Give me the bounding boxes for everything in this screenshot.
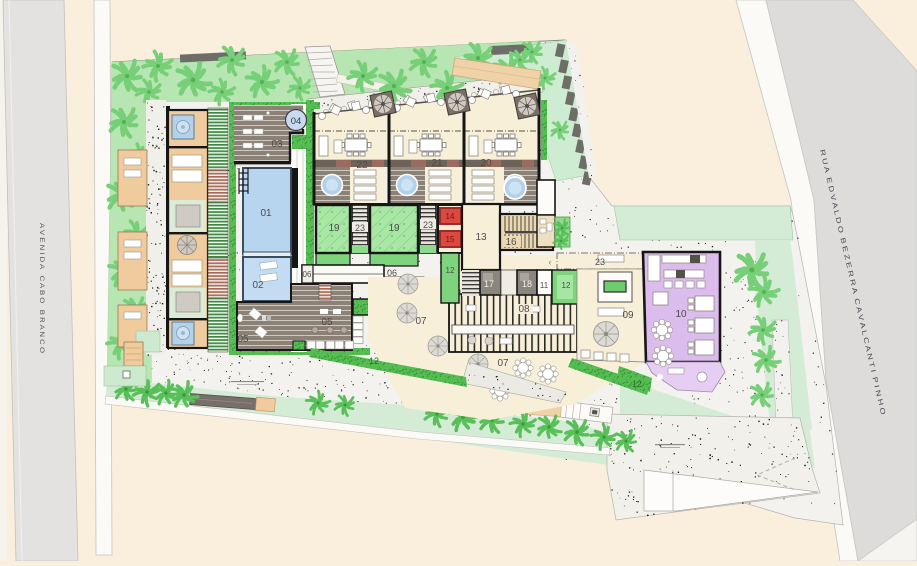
svg-text:23: 23 — [595, 257, 605, 267]
svg-text:16: 16 — [505, 237, 517, 248]
svg-text:18: 18 — [522, 279, 532, 289]
svg-text:14: 14 — [446, 212, 455, 221]
svg-text:15: 15 — [446, 235, 455, 244]
svg-text:02: 02 — [252, 280, 264, 291]
svg-text:23: 23 — [355, 223, 365, 233]
svg-text:06: 06 — [387, 268, 397, 278]
svg-text:04: 04 — [291, 116, 302, 127]
svg-text:12: 12 — [562, 281, 571, 290]
svg-text:10: 10 — [675, 309, 687, 320]
svg-text:19: 19 — [388, 223, 400, 234]
svg-text:07: 07 — [415, 316, 427, 327]
svg-text:06: 06 — [303, 270, 312, 279]
svg-text:19: 19 — [328, 223, 340, 234]
svg-text:01: 01 — [260, 208, 272, 219]
svg-text:22: 22 — [356, 160, 368, 171]
svg-text:12: 12 — [632, 379, 642, 389]
svg-text:12: 12 — [369, 356, 379, 366]
svg-text:05: 05 — [321, 317, 333, 328]
svg-text:11: 11 — [540, 281, 549, 290]
svg-text:07: 07 — [497, 358, 509, 369]
svg-text:03: 03 — [271, 139, 283, 150]
svg-text:17: 17 — [484, 279, 494, 289]
svg-text:20: 20 — [480, 158, 492, 169]
svg-text:13: 13 — [475, 232, 487, 243]
svg-text:23: 23 — [423, 220, 433, 230]
svg-text:‹: ‹ — [549, 257, 552, 267]
svg-text:08: 08 — [518, 304, 530, 315]
svg-text:09: 09 — [622, 310, 634, 321]
svg-text:05: 05 — [237, 334, 249, 345]
svg-text:A V E N I D A C A B O B R: A V E N I D A C A B O B R A N C O — [38, 223, 45, 353]
svg-text:12: 12 — [446, 266, 455, 275]
svg-text:21: 21 — [431, 158, 443, 169]
